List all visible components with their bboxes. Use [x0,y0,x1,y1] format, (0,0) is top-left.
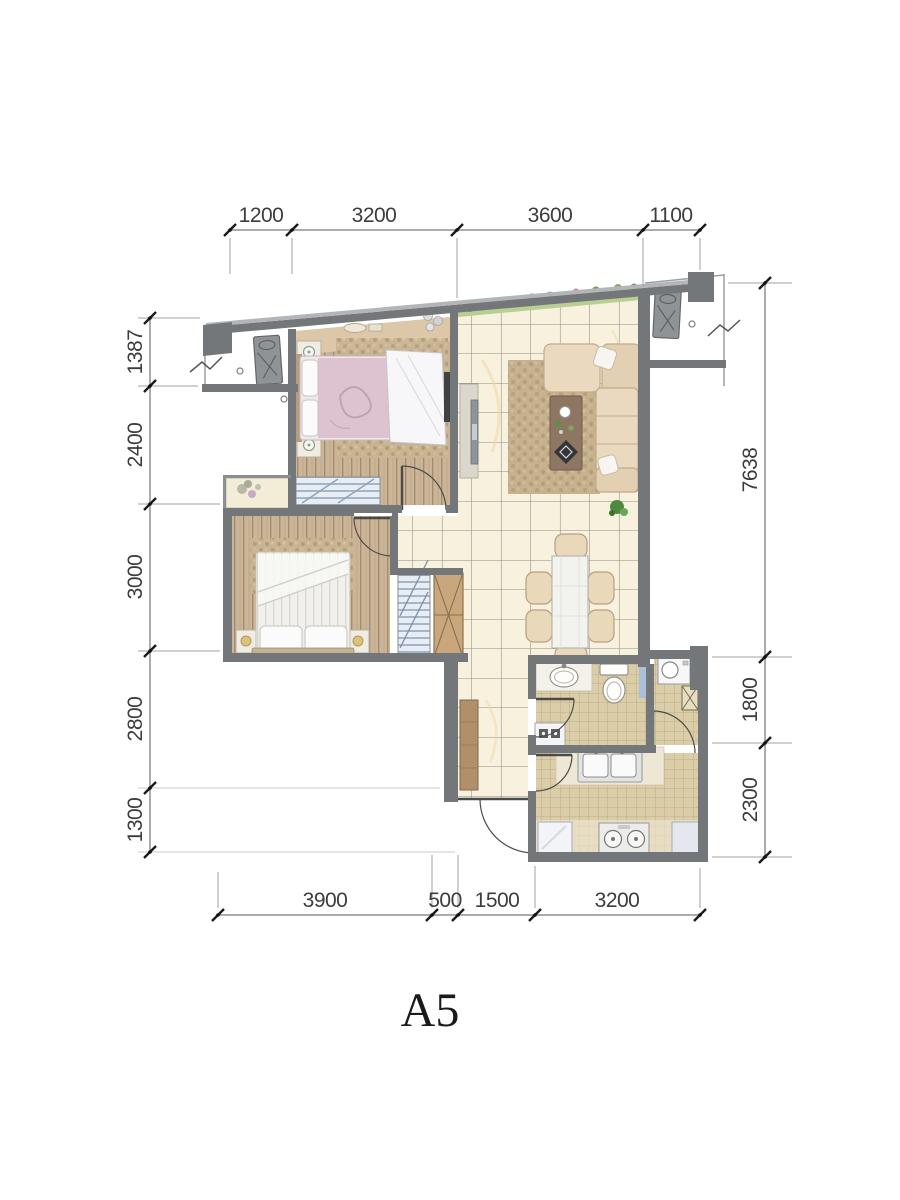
dim-right-2: 1800 [739,678,762,723]
wall-thin [223,475,291,478]
sink-counter [536,661,592,691]
dim-left-5: 1300 [124,798,147,843]
wall [528,791,536,861]
dim-right-3: 2300 [739,778,762,823]
toilet-icon [600,664,628,703]
wall [698,646,708,862]
dim-bottom-2: 500 [428,889,462,912]
water-heater-icon [658,657,690,684]
cabinet-hatched [434,573,463,657]
unit-label: A5 [401,984,460,1037]
tv-cabinet [460,384,478,478]
cabinet [672,822,699,853]
dim-bottom-3: 1500 [475,889,520,912]
wall [528,745,536,755]
wall [223,653,468,662]
wall-stub-topleft [203,322,232,356]
dim-top-2: 3200 [352,204,397,227]
wall-break-icon [190,357,222,372]
shoe-cabinet [460,700,478,790]
bed-double [252,552,354,657]
dining-table [552,556,588,648]
floorplan-page: 1200 3200 3600 1100 3900 500 1500 3200 1… [0,0,900,1200]
dim-right-1: 7638 [739,448,762,493]
decor-item [369,324,382,331]
wall [528,655,650,664]
coffee-table [550,396,582,470]
wall [202,384,298,392]
wall [536,745,648,753]
dim-top-3: 3600 [528,204,573,227]
dim-left-1: 1387 [124,330,147,375]
pillow [597,454,619,476]
wall-thin [223,475,226,511]
wall [288,329,296,513]
dimension-bottom: 3900 500 1500 3200 [212,855,706,921]
drain-icon [689,321,695,327]
wall [390,568,463,575]
ac-unit-icon [653,289,681,338]
wall [646,664,654,747]
stove-icon [599,823,649,854]
pillow [302,360,318,396]
pillow [302,400,318,436]
entry-door-arc [480,799,534,853]
hall-upper-floor [396,516,458,572]
kitchen-sink-icon [578,749,642,782]
dim-bottom-1: 3900 [303,889,348,912]
dim-top-1: 1200 [239,204,284,227]
flower-bay [226,478,290,508]
wall [223,508,354,516]
dim-bottom-4: 3200 [595,889,640,912]
wall [444,662,458,802]
wardrobe [296,477,380,505]
floorplan-drawing: 1200 3200 3600 1100 3900 500 1500 3200 1… [0,0,900,1200]
wall [390,516,398,572]
dim-left-4: 2800 [124,697,147,742]
wall [450,311,458,513]
wall [392,508,398,516]
wall [646,745,656,753]
wall [528,852,708,862]
ac-unit-icon [253,335,282,385]
bed-double [296,350,446,445]
wall [644,360,726,368]
drain-icon [237,368,243,374]
dim-top-4: 1100 [649,204,692,227]
vent-icon [344,324,366,333]
wall [223,508,232,662]
fridge-icon [538,822,572,853]
dim-left-3: 3000 [124,555,147,600]
wall-stub-topright [688,272,714,302]
drain-icon [281,396,287,402]
wall [528,664,536,699]
dim-left-2: 2400 [124,423,147,468]
wall [638,289,650,667]
